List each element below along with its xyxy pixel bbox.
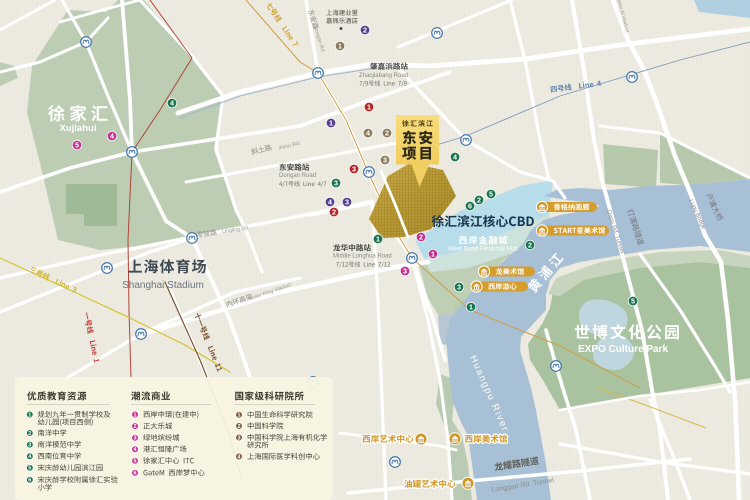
svg-text:3: 3 xyxy=(352,165,356,174)
svg-text:4: 4 xyxy=(453,153,457,162)
svg-text:1: 1 xyxy=(329,119,333,128)
svg-text:3: 3 xyxy=(345,198,349,207)
svg-text:3: 3 xyxy=(457,283,461,292)
svg-text:4: 4 xyxy=(110,132,114,141)
svg-text:1: 1 xyxy=(338,42,342,51)
svg-text:2: 2 xyxy=(528,241,532,250)
svg-text:EXPO Culture Park: EXPO Culture Park xyxy=(578,344,668,355)
svg-text:4: 4 xyxy=(170,99,174,108)
svg-text:5: 5 xyxy=(134,459,137,465)
svg-text:3: 3 xyxy=(334,179,338,188)
svg-text:Shanghai Stadium: Shanghai Stadium xyxy=(122,280,204,291)
svg-text:4: 4 xyxy=(328,198,332,207)
svg-text:4: 4 xyxy=(366,129,370,138)
svg-text:Dongan Road: Dongan Road xyxy=(279,173,316,179)
svg-text:6: 6 xyxy=(134,471,137,477)
svg-text:1: 1 xyxy=(469,303,473,312)
svg-text:2: 2 xyxy=(238,424,241,430)
svg-text:3: 3 xyxy=(383,156,387,165)
svg-text:2: 2 xyxy=(363,26,367,35)
svg-text:5: 5 xyxy=(489,190,493,199)
svg-text:6: 6 xyxy=(468,202,472,211)
svg-text:2: 2 xyxy=(332,208,336,217)
svg-text:West Bund Financial Hub: West Bund Financial Hub xyxy=(448,246,518,253)
svg-text:5: 5 xyxy=(75,141,79,150)
svg-text:4: 4 xyxy=(238,454,241,460)
svg-text:Xujiahui: Xujiahui xyxy=(60,123,97,134)
svg-text:3: 3 xyxy=(403,267,407,276)
svg-text:1: 1 xyxy=(134,412,137,418)
svg-text:1: 1 xyxy=(28,412,31,418)
svg-text:1: 1 xyxy=(376,235,380,244)
svg-text:4: 4 xyxy=(28,454,31,460)
svg-text:1: 1 xyxy=(238,413,241,419)
svg-text:2: 2 xyxy=(477,196,481,205)
svg-text:2: 2 xyxy=(385,129,389,138)
svg-text:Middle Longhua Road: Middle Longhua Road xyxy=(333,254,392,260)
svg-text:2: 2 xyxy=(419,233,423,242)
svg-text:2: 2 xyxy=(134,424,137,430)
svg-text:1: 1 xyxy=(431,250,435,259)
svg-text:5: 5 xyxy=(631,297,635,306)
svg-text:3: 3 xyxy=(134,436,137,442)
svg-text:6: 6 xyxy=(28,478,31,484)
svg-text:2: 2 xyxy=(28,431,31,437)
svg-text:3: 3 xyxy=(28,443,31,449)
svg-text:3: 3 xyxy=(238,435,241,441)
svg-text:1: 1 xyxy=(367,103,371,112)
svg-text:4: 4 xyxy=(134,447,137,453)
svg-text:Zhaojiabang Road: Zhaojiabang Road xyxy=(359,73,408,79)
svg-text:5: 5 xyxy=(28,466,31,472)
